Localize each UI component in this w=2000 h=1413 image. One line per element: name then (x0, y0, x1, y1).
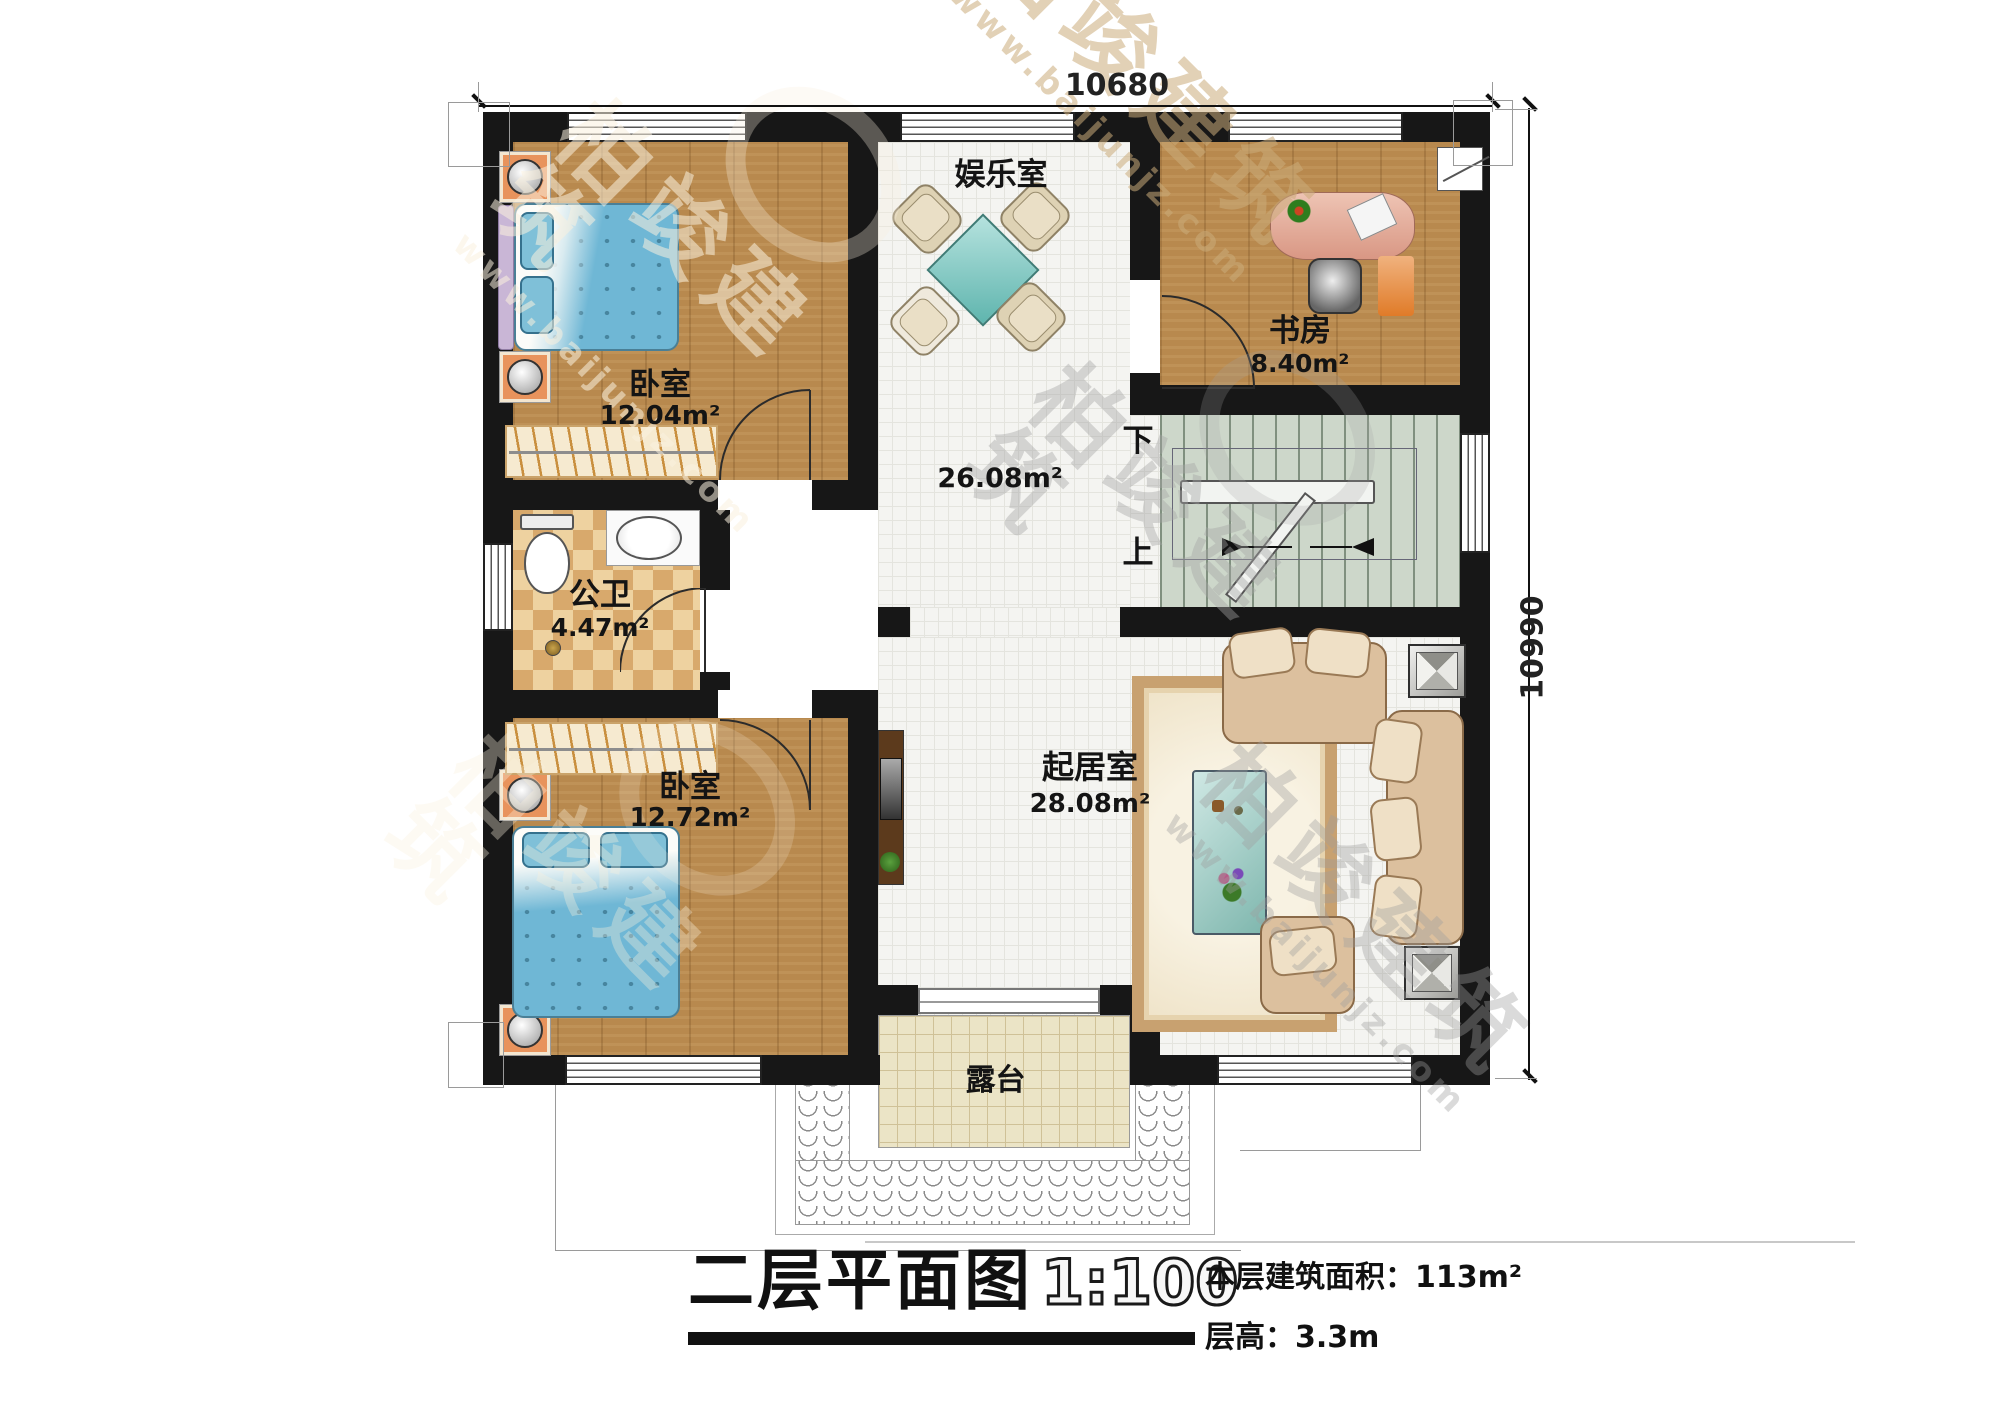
room-area-bedroom-bottom: 12.72m² (605, 804, 775, 833)
pillow (520, 212, 554, 270)
title-underline (688, 1332, 1195, 1345)
stairs-down-label: 下 (1118, 424, 1158, 458)
window (1228, 112, 1403, 142)
terrace-door (918, 988, 1100, 1014)
lower-floor-corner (448, 1022, 504, 1088)
room-label-bedroom-bottom: 卧室 (615, 770, 765, 804)
wall-terrace-left-stub (848, 985, 918, 1015)
wall-bedroom-top-bottom (812, 480, 878, 510)
room-label-terrace: 露台 (948, 1064, 1043, 1097)
sofa-two-seat (1222, 642, 1387, 744)
sink-icon (616, 516, 682, 560)
room-area-bedroom-top: 12.04m² (575, 402, 745, 431)
wardrobe-rod (509, 748, 714, 751)
lamp-icon (507, 777, 543, 813)
lower-floor-line (1240, 1150, 1421, 1151)
wardrobe (505, 722, 718, 775)
table-decor (1212, 800, 1224, 812)
lower-floor-line (1420, 1085, 1421, 1151)
floor-drain (545, 640, 561, 656)
lower-floor-corner (448, 102, 510, 167)
floor-plan: 柏竣建筑 www.baijunjz.com 柏竣建筑 www.baijunjz.… (0, 0, 2000, 1413)
wall-bedroom-top-right (848, 140, 878, 510)
stair-arrow-left (1352, 538, 1374, 556)
pillow (520, 276, 554, 334)
wall-study-left (1130, 140, 1160, 280)
exterior-wall-right (1460, 112, 1490, 1085)
lower-floor-corner (1453, 100, 1513, 166)
room-label-study: 书房 (1245, 314, 1355, 348)
stair-arrow-line (1240, 546, 1292, 548)
dimension-tick (1522, 1068, 1538, 1084)
lamp-icon (1416, 652, 1458, 690)
stair-arrow-right (1222, 538, 1244, 556)
window (483, 543, 513, 631)
wall-study-left (1130, 373, 1160, 385)
bed-headboard (498, 205, 514, 350)
dimension-top-value: 10680 (1047, 68, 1187, 103)
pillow (522, 832, 590, 868)
lamp-icon (507, 159, 543, 195)
desk-chair (1308, 258, 1362, 314)
room-label-bedroom-top: 卧室 (585, 368, 735, 402)
room-label-living: 起居室 (1010, 750, 1170, 785)
wall-hall-living-stub (878, 607, 910, 637)
plant-icon (880, 852, 900, 872)
stair-handrail (1180, 480, 1375, 504)
hall-living-opening (910, 607, 1120, 637)
side-table (1408, 644, 1466, 698)
room-area-bathroom: 4.47m² (540, 614, 660, 642)
room-label-bathroom: 公卫 (545, 578, 655, 612)
lamp-icon (507, 359, 543, 395)
wall-bedroom-top-bottom (483, 480, 718, 510)
stairs-up-label: 上 (1118, 536, 1158, 570)
window (1460, 433, 1490, 553)
wall-bathroom-bottom (483, 690, 718, 718)
coffee-table (1192, 770, 1267, 935)
side-table (1404, 946, 1460, 1000)
extension-line (1495, 1078, 1537, 1079)
wall-bathroom-right (700, 510, 730, 590)
plant-icon (1284, 196, 1314, 226)
floor-area-text: 本层建筑面积：113m² (1205, 1252, 1522, 1296)
stair-arrow-line (1310, 546, 1352, 548)
window (1217, 1055, 1413, 1085)
nightstand (500, 352, 550, 402)
terrace-door-line (920, 1001, 1098, 1003)
room-label-entertainment: 娱乐室 (931, 158, 1071, 192)
armchair (1260, 916, 1355, 1014)
flowers-icon (1210, 860, 1250, 906)
wall-bedroom-bottom-right (848, 718, 878, 1085)
dimension-right-value: 10990 (1516, 593, 1551, 703)
room-area-study: 8.40m² (1240, 350, 1360, 378)
pillow (600, 832, 668, 868)
window (565, 1055, 762, 1085)
plan-title: 二层平面图 (688, 1248, 1033, 1314)
dimension-line-top (478, 105, 1493, 107)
toilet-tank (520, 514, 574, 530)
room-area-living: 28.08m² (1015, 790, 1165, 819)
wall-bathroom-right (700, 672, 730, 690)
titleblock: 二层平面图 1:100 (688, 1248, 1238, 1314)
wardrobe (505, 425, 718, 478)
sofa-three-seat (1386, 710, 1464, 945)
lower-floor-line (555, 1085, 556, 1250)
table-decor (1234, 806, 1243, 815)
window (567, 112, 747, 142)
roof-tiles-bottom (795, 1160, 1190, 1225)
room-area-hall: 26.08m² (930, 464, 1070, 494)
wardrobe-rod (509, 451, 714, 454)
window (900, 112, 1075, 142)
floor-height-text: 层高：3.3m (1205, 1312, 1379, 1356)
nightstand (500, 770, 550, 820)
rug (1378, 256, 1414, 316)
wall-bathroom-bottom (812, 690, 878, 718)
lamp-icon (1412, 954, 1452, 992)
tv-icon (880, 758, 902, 820)
